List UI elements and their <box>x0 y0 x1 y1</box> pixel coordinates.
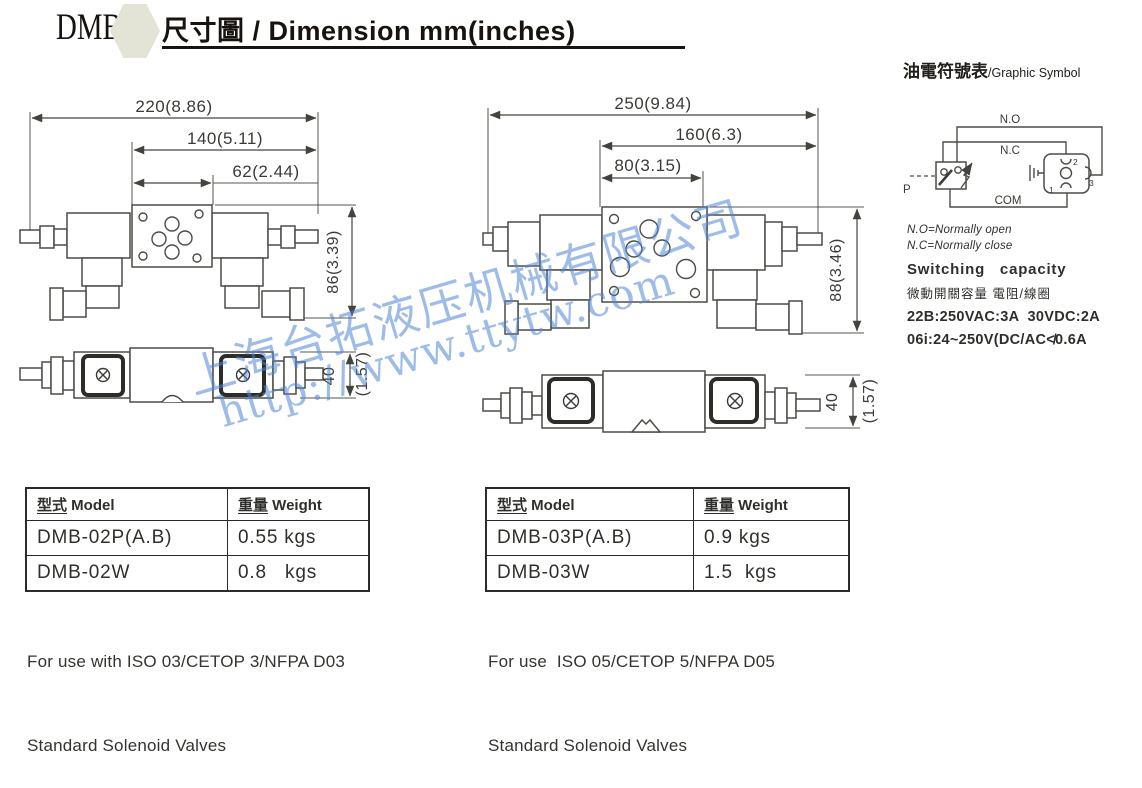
dim-label-80: 80(3.15) <box>614 156 681 175</box>
dim-label-40-right: 40 <box>824 393 841 412</box>
weight-cell: 0.9 kgs <box>694 521 850 556</box>
usage-note-line: For use with ISO 03/CETOP 3/NFPA D03 <box>27 648 345 676</box>
model-header-en: Model <box>67 497 115 514</box>
graphic-symbol-circuit: N.O N.C COM P 2 3 1 <box>903 114 1102 207</box>
model-header-zh: 型式 <box>37 497 67 514</box>
weight-header: 重量 Weight <box>228 488 370 521</box>
usage-note-line: Standard Solenoid Valves <box>488 732 775 760</box>
label-com: COM <box>995 195 1022 207</box>
dim-label-140: 140(5.11) <box>187 129 263 148</box>
right-valve-front-view: 250(9.84) 160(6.3) 80(3.15) 88(3.46) <box>483 94 864 334</box>
dim-label-157-left: (1.57) <box>354 352 371 397</box>
weight-cell: 0.55 kgs <box>228 521 370 556</box>
dimension-drawings: 220(8.86) 140(5.11) 62(2.44) 86(3.39) 40… <box>0 55 1142 470</box>
weight-header: 重量 Weight <box>694 488 850 521</box>
dim-label-62: 62(2.44) <box>232 162 299 181</box>
weight-header-zh: 重量 <box>704 497 734 514</box>
model-header-zh: 型式 <box>497 497 527 514</box>
page-title: 尺寸圖 / Dimension mm(inches) <box>162 9 576 48</box>
page-title-en: Dimension mm(inches) <box>269 16 576 46</box>
title-underline <box>162 46 685 49</box>
label-pin1: 1 <box>1049 185 1054 195</box>
label-pin2: 2 <box>1073 157 1078 167</box>
model-header: 型式 Model <box>486 488 694 521</box>
usage-note-right: For use ISO 05/CETOP 5/NFPA D05 Standard… <box>488 592 775 788</box>
table-row: DMB-02P(A.B) 0.55 kgs <box>26 521 369 556</box>
model-cell: DMB-03W <box>486 556 694 592</box>
usage-note-line: For use ISO 05/CETOP 5/NFPA D05 <box>488 648 775 676</box>
table-row: DMB-03P(A.B) 0.9 kgs <box>486 521 849 556</box>
label-nc: N.C <box>1000 145 1020 157</box>
model-weight-table-02: 型式 Model 重量 Weight DMB-02P(A.B) 0.55 kgs… <box>25 487 370 592</box>
page-title-sep: / <box>245 16 269 46</box>
catalog-page: { "header": { "logo": "DMB", "title_zh":… <box>0 0 1142 651</box>
model-cell: DMB-02W <box>26 556 228 592</box>
model-header-en: Model <box>527 497 575 514</box>
dim-label-250: 250(9.84) <box>614 94 691 113</box>
table-header-row: 型式 Model 重量 Weight <box>486 488 849 521</box>
table-header-row: 型式 Model 重量 Weight <box>26 488 369 521</box>
right-valve-bottom-view: 40 (1.57) <box>483 371 878 432</box>
dim-label-220: 220(8.86) <box>135 97 212 116</box>
model-cell: DMB-02P(A.B) <box>26 521 228 556</box>
dim-label-160: 160(6.3) <box>675 125 742 144</box>
weight-header-zh: 重量 <box>238 497 268 514</box>
table-row: DMB-03W 1.5 kgs <box>486 556 849 592</box>
usage-note-line: Standard Solenoid Valves <box>27 732 345 760</box>
page-title-zh: 尺寸圖 <box>162 16 245 46</box>
weight-header-en: Weight <box>268 497 322 514</box>
left-valve-front-view: 220(8.86) 140(5.11) 62(2.44) 86(3.39) <box>20 97 356 320</box>
dim-label-88: 88(3.46) <box>828 238 845 302</box>
label-p: P <box>903 184 911 196</box>
dim-label-86: 86(3.39) <box>325 230 342 294</box>
model-weight-table-03: 型式 Model 重量 Weight DMB-03P(A.B) 0.9 kgs … <box>485 487 850 592</box>
model-header: 型式 Model <box>26 488 228 521</box>
weight-header-en: Weight <box>734 497 788 514</box>
weight-cell: 0.8 kgs <box>228 556 370 592</box>
dim-label-40-left: 40 <box>321 367 338 386</box>
label-no: N.O <box>1000 114 1021 126</box>
label-pin3: 3 <box>1089 178 1094 188</box>
usage-note-left: For use with ISO 03/CETOP 3/NFPA D03 Sta… <box>27 592 345 788</box>
dim-label-157-right: (1.57) <box>861 379 878 424</box>
table-row: DMB-02W 0.8 kgs <box>26 556 369 592</box>
left-valve-bottom-view: 40 (1.57) <box>20 348 371 402</box>
weight-cell: 1.5 kgs <box>694 556 850 592</box>
model-cell: DMB-03P(A.B) <box>486 521 694 556</box>
